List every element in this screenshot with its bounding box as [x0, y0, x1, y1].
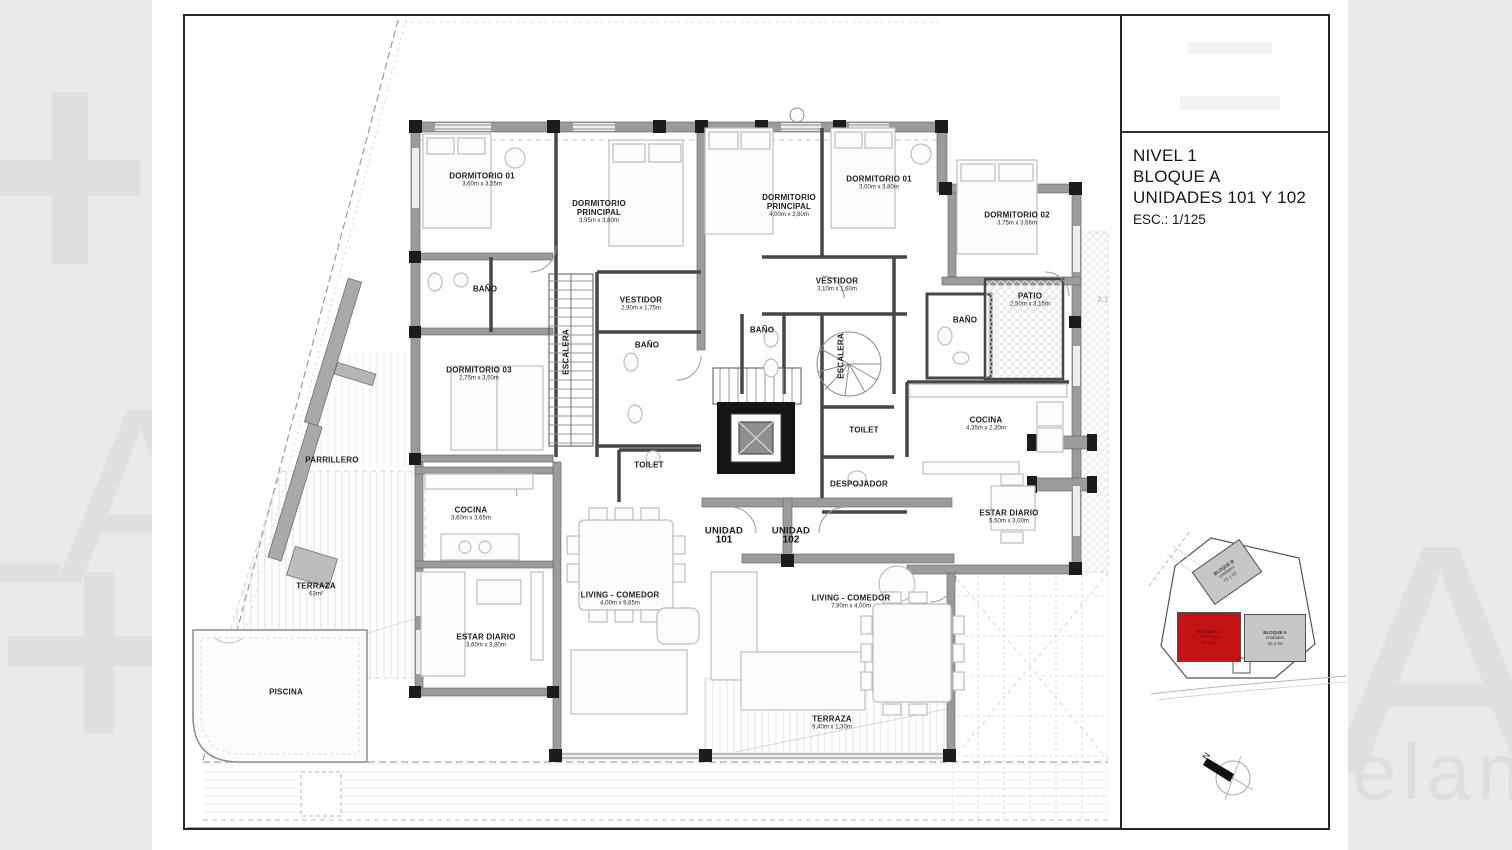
title-level: NIVEL 1	[1133, 145, 1306, 166]
room-label: LIVING - COMEDOR 7,90m x 4,00m	[812, 594, 891, 611]
room-label: COCINA 4,35m x 2,30m	[966, 416, 1006, 433]
room-label: UNIDAD 102	[772, 526, 810, 545]
plan-labels: DORMITORIO 01 3,60m x 3,55m DORMITORIO P…	[185, 16, 1120, 828]
key-map-block: BLOQUE Aunidades01 y 02	[1177, 612, 1241, 662]
room-label: DESPOJADOR	[830, 480, 888, 489]
room-label: DORMITORIO 02 3,75m x 3,66m	[984, 211, 1050, 228]
title-block-name: BLOQUE A	[1133, 166, 1306, 187]
room-label: VESTIDOR 2,90m x 1,75m	[620, 296, 663, 313]
room-label: TOILET	[634, 461, 664, 470]
key-map-block: BLOQUE Aunidades03 y 04	[1244, 614, 1306, 662]
room-label: VESTIDOR 3,10m x 1,60m	[816, 277, 859, 294]
room-label: BAÑO	[635, 341, 659, 350]
room-label: TOILET	[849, 426, 879, 435]
room-label: COCINA 3,60m x 3,65m	[451, 506, 491, 523]
title-separator	[1122, 131, 1328, 133]
room-label: PARRILLERO	[305, 456, 358, 465]
sheet-title: NIVEL 1 BLOQUE A UNIDADES 101 Y 102 ESC.…	[1133, 145, 1306, 227]
room-label: ESTAR DIARIO 5,50m x 3,00m	[979, 509, 1038, 526]
watermark-text-bottom-right: elan	[1352, 726, 1512, 818]
logo-area	[1128, 30, 1322, 130]
north-arrow: N	[1197, 742, 1267, 812]
watermark-plus-top-hbar	[0, 160, 140, 196]
room-label: BAÑO	[473, 285, 497, 294]
room-label: TERRAZA 63m²	[296, 582, 336, 599]
room-label: DORMITORIO 03 2,75m x 3,50m	[446, 366, 512, 383]
watermark-plus-bottom-hbar	[8, 636, 154, 666]
room-label: DORMITORIO 01 3,60m x 3,55m	[449, 172, 515, 189]
room-label: TERRAZA 9,40m x 1,30m	[812, 715, 852, 732]
room-label: ESCALERA	[562, 329, 571, 375]
room-label: PISCINA	[269, 688, 303, 697]
room-label: LIVING - COMEDOR 4,00m x 9,65m	[581, 591, 660, 608]
room-label: DORMITORIO 01 3,00m x 3,80m	[846, 175, 912, 192]
room-label: BAÑO	[750, 326, 774, 335]
title-units: UNIDADES 101 Y 102	[1133, 187, 1306, 208]
room-label: UNIDAD 101	[705, 526, 743, 545]
room-label: PATIO 2,50m x 3,15m	[1010, 292, 1050, 309]
room-label: ESTAR DIARIO 3,60m x 3,80m	[456, 633, 515, 650]
title-block: NIVEL 1 BLOQUE A UNIDADES 101 Y 102 ESC.…	[1122, 16, 1330, 828]
room-label: BAÑO	[953, 316, 977, 325]
room-label: DORMITORIO PRINCIPAL 3,95m x 3,80m	[559, 199, 639, 225]
room-label: ESCALERA	[837, 333, 846, 379]
room-label: DORMITORIO PRINCIPAL 4,00m x 3,80m	[749, 193, 829, 219]
drawing-frame: DORMITORIO 01 3,60m x 3,55m DORMITORIO P…	[183, 14, 1330, 830]
title-scale: ESC.: 1/125	[1133, 212, 1306, 227]
site-key-map: BLOQUE Bunidades01 y 02 BLOQUE Aunidades…	[1147, 524, 1352, 704]
room-label: 2,1	[1098, 296, 1108, 305]
